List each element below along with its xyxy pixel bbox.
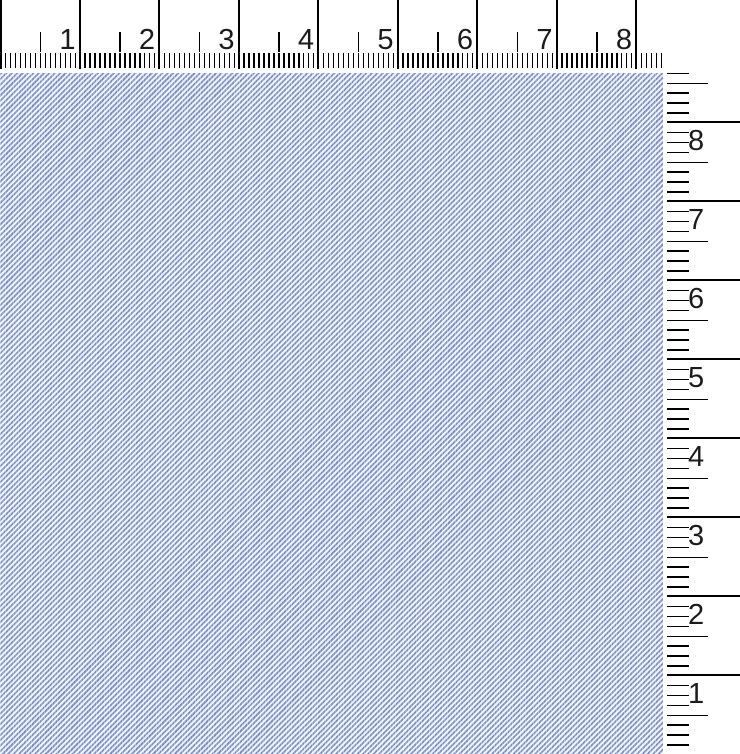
minor-tick bbox=[174, 53, 175, 68]
half-tick bbox=[667, 478, 708, 480]
minor-tick bbox=[283, 53, 284, 68]
h-ruler-number: 1 bbox=[17, 26, 76, 55]
minor-tick bbox=[667, 645, 689, 647]
major-tick bbox=[667, 279, 740, 281]
minor-tick bbox=[119, 53, 120, 68]
minor-tick bbox=[667, 191, 689, 193]
major-tick bbox=[476, 0, 478, 69]
minor-tick bbox=[667, 389, 689, 391]
major-tick bbox=[556, 0, 558, 69]
minor-tick bbox=[169, 53, 170, 68]
minor-tick bbox=[667, 142, 689, 144]
half-tick bbox=[358, 32, 360, 52]
minor-tick bbox=[273, 53, 274, 68]
horizontal-ruler: 12345678 bbox=[0, 0, 663, 72]
v-ruler-number: 4 bbox=[688, 443, 728, 472]
minor-tick bbox=[667, 112, 689, 114]
minor-tick bbox=[667, 418, 689, 420]
minor-tick bbox=[313, 53, 314, 68]
minor-tick bbox=[667, 507, 689, 509]
minor-tick bbox=[667, 576, 689, 578]
v-ruler-number: 8 bbox=[688, 127, 728, 156]
minor-tick bbox=[507, 53, 508, 68]
h-ruler-number: 7 bbox=[494, 26, 553, 55]
minor-tick bbox=[447, 53, 448, 68]
minor-tick bbox=[492, 53, 493, 68]
major-tick bbox=[667, 595, 740, 597]
minor-tick bbox=[667, 132, 689, 134]
major-tick bbox=[79, 0, 81, 69]
minor-tick bbox=[442, 53, 443, 68]
minor-tick bbox=[667, 221, 689, 223]
minor-tick bbox=[502, 53, 503, 68]
minor-tick bbox=[457, 53, 458, 68]
minor-tick bbox=[60, 53, 61, 68]
minor-tick bbox=[154, 53, 155, 68]
minor-tick bbox=[393, 53, 394, 68]
h-ruler-number: 5 bbox=[335, 26, 394, 55]
minor-tick bbox=[667, 231, 689, 233]
minor-tick bbox=[184, 53, 185, 68]
minor-tick bbox=[134, 53, 135, 68]
minor-tick bbox=[144, 53, 145, 68]
minor-tick bbox=[667, 497, 689, 499]
h-ruler-number: 2 bbox=[96, 26, 155, 55]
minor-tick bbox=[114, 53, 115, 68]
minor-tick bbox=[616, 53, 617, 68]
minor-tick bbox=[571, 53, 572, 68]
v-ruler-number: 5 bbox=[688, 364, 728, 393]
minor-tick bbox=[20, 53, 21, 68]
minor-tick bbox=[542, 53, 543, 68]
minor-tick bbox=[581, 53, 582, 68]
major-tick bbox=[158, 0, 160, 69]
minor-tick bbox=[149, 53, 150, 68]
minor-tick bbox=[417, 53, 418, 68]
minor-tick bbox=[55, 53, 56, 68]
major-tick bbox=[635, 0, 637, 69]
minor-tick bbox=[611, 53, 612, 68]
minor-tick bbox=[15, 53, 16, 68]
minor-tick bbox=[667, 73, 689, 75]
minor-tick bbox=[606, 53, 607, 68]
minor-tick bbox=[667, 290, 689, 292]
half-tick bbox=[667, 715, 708, 717]
minor-tick bbox=[333, 53, 334, 68]
minor-tick bbox=[576, 53, 577, 68]
minor-tick bbox=[667, 537, 689, 539]
minor-tick bbox=[667, 665, 689, 667]
minor-tick bbox=[667, 300, 689, 302]
minor-tick bbox=[667, 487, 689, 489]
minor-tick bbox=[596, 53, 597, 68]
minor-tick bbox=[432, 53, 433, 68]
minor-tick bbox=[646, 53, 647, 68]
minor-tick bbox=[293, 53, 294, 68]
half-tick bbox=[119, 32, 121, 52]
minor-tick bbox=[328, 53, 329, 68]
v-ruler-number: 6 bbox=[688, 285, 728, 314]
minor-tick bbox=[164, 53, 165, 68]
minor-tick bbox=[667, 685, 689, 687]
minor-tick bbox=[388, 53, 389, 68]
minor-tick bbox=[214, 53, 215, 68]
minor-tick bbox=[437, 53, 438, 68]
minor-tick bbox=[373, 53, 374, 68]
minor-tick bbox=[667, 102, 689, 104]
minor-tick bbox=[104, 53, 105, 68]
major-tick bbox=[397, 0, 399, 69]
minor-tick bbox=[358, 53, 359, 68]
minor-tick bbox=[348, 53, 349, 68]
half-tick bbox=[667, 636, 708, 638]
minor-tick bbox=[631, 53, 632, 68]
minor-tick bbox=[467, 53, 468, 68]
minor-tick bbox=[552, 53, 553, 68]
minor-tick bbox=[452, 53, 453, 68]
minor-tick bbox=[667, 250, 689, 252]
minor-tick bbox=[667, 171, 689, 173]
minor-tick bbox=[667, 260, 689, 262]
minor-tick bbox=[667, 705, 689, 707]
minor-tick bbox=[199, 53, 200, 68]
minor-tick bbox=[179, 53, 180, 68]
minor-tick bbox=[109, 53, 110, 68]
half-tick bbox=[667, 162, 708, 164]
minor-tick bbox=[45, 53, 46, 68]
minor-tick bbox=[35, 53, 36, 68]
minor-tick bbox=[561, 53, 562, 68]
half-tick bbox=[667, 557, 708, 559]
minor-tick bbox=[323, 53, 324, 68]
minor-tick bbox=[253, 53, 254, 68]
minor-tick bbox=[422, 53, 423, 68]
minor-tick bbox=[651, 53, 652, 68]
h-ruler-number: 4 bbox=[255, 26, 314, 55]
minor-tick bbox=[30, 53, 31, 68]
minor-tick bbox=[667, 211, 689, 213]
major-tick bbox=[667, 437, 740, 439]
minor-tick bbox=[547, 53, 548, 68]
fabric-swatch bbox=[0, 73, 663, 754]
major-tick bbox=[667, 121, 740, 123]
minor-tick bbox=[667, 547, 689, 549]
minor-tick bbox=[194, 53, 195, 68]
minor-tick bbox=[661, 53, 662, 68]
fabric-swatch-page: 12345678 87654321 bbox=[0, 0, 740, 754]
minor-tick bbox=[667, 695, 689, 697]
minor-tick bbox=[94, 53, 95, 68]
minor-tick bbox=[532, 53, 533, 68]
minor-tick bbox=[497, 53, 498, 68]
minor-tick bbox=[667, 616, 689, 618]
minor-tick bbox=[268, 53, 269, 68]
minor-tick bbox=[303, 53, 304, 68]
minor-tick bbox=[278, 53, 279, 68]
minor-tick bbox=[258, 53, 259, 68]
major-tick bbox=[667, 516, 740, 518]
vertical-ruler: 87654321 bbox=[663, 70, 740, 754]
half-tick bbox=[667, 83, 708, 85]
half-tick bbox=[667, 399, 708, 401]
minor-tick bbox=[25, 53, 26, 68]
minor-tick bbox=[248, 53, 249, 68]
minor-tick bbox=[667, 734, 689, 736]
minor-tick bbox=[667, 527, 689, 529]
minor-tick bbox=[288, 53, 289, 68]
minor-tick bbox=[667, 448, 689, 450]
minor-tick bbox=[667, 152, 689, 154]
h-ruler-number: 6 bbox=[414, 26, 473, 55]
minor-tick bbox=[139, 53, 140, 68]
half-tick bbox=[667, 241, 708, 243]
minor-tick bbox=[298, 53, 299, 68]
minor-tick bbox=[84, 53, 85, 68]
minor-tick bbox=[263, 53, 264, 68]
minor-tick bbox=[667, 468, 689, 470]
minor-tick bbox=[667, 310, 689, 312]
minor-tick bbox=[224, 53, 225, 68]
minor-tick bbox=[667, 428, 689, 430]
minor-tick bbox=[368, 53, 369, 68]
minor-tick bbox=[407, 53, 408, 68]
v-ruler-number: 2 bbox=[688, 601, 728, 630]
minor-tick bbox=[343, 53, 344, 68]
major-tick bbox=[317, 0, 319, 69]
minor-tick bbox=[667, 379, 689, 381]
minor-tick bbox=[667, 270, 689, 272]
minor-tick bbox=[75, 53, 76, 68]
half-tick bbox=[437, 32, 439, 52]
minor-tick bbox=[338, 53, 339, 68]
minor-tick bbox=[50, 53, 51, 68]
v-ruler-number: 1 bbox=[688, 680, 728, 709]
minor-tick bbox=[482, 53, 483, 68]
minor-tick bbox=[621, 53, 622, 68]
minor-tick bbox=[667, 626, 689, 628]
minor-tick bbox=[667, 181, 689, 183]
minor-tick bbox=[204, 53, 205, 68]
minor-tick bbox=[566, 53, 567, 68]
minor-tick bbox=[626, 53, 627, 68]
minor-tick bbox=[412, 53, 413, 68]
minor-tick bbox=[99, 53, 100, 68]
minor-tick bbox=[40, 53, 41, 68]
minor-tick bbox=[472, 53, 473, 68]
minor-tick bbox=[667, 92, 689, 94]
minor-tick bbox=[234, 53, 235, 68]
minor-tick bbox=[124, 53, 125, 68]
minor-tick bbox=[667, 744, 689, 746]
half-tick bbox=[199, 32, 201, 52]
minor-tick bbox=[512, 53, 513, 68]
minor-tick bbox=[487, 53, 488, 68]
minor-tick bbox=[427, 53, 428, 68]
minor-tick bbox=[129, 53, 130, 68]
minor-tick bbox=[667, 655, 689, 657]
minor-tick bbox=[522, 53, 523, 68]
minor-tick bbox=[667, 349, 689, 351]
minor-tick bbox=[667, 724, 689, 726]
minor-tick bbox=[667, 369, 689, 371]
minor-tick bbox=[667, 606, 689, 608]
minor-tick bbox=[402, 53, 403, 68]
major-tick bbox=[667, 358, 740, 360]
major-tick bbox=[0, 0, 2, 69]
minor-tick bbox=[586, 53, 587, 68]
minor-tick bbox=[537, 53, 538, 68]
minor-tick bbox=[243, 53, 244, 68]
half-tick bbox=[517, 32, 519, 52]
minor-tick bbox=[378, 53, 379, 68]
major-tick bbox=[238, 0, 240, 69]
half-tick bbox=[667, 320, 708, 322]
minor-tick bbox=[219, 53, 220, 68]
v-ruler-number: 3 bbox=[688, 522, 728, 551]
minor-tick bbox=[10, 53, 11, 68]
minor-tick bbox=[462, 53, 463, 68]
minor-tick bbox=[667, 586, 689, 588]
half-tick bbox=[40, 32, 42, 52]
minor-tick bbox=[89, 53, 90, 68]
minor-tick bbox=[517, 53, 518, 68]
minor-tick bbox=[667, 339, 689, 341]
minor-tick bbox=[667, 329, 689, 331]
minor-tick bbox=[383, 53, 384, 68]
minor-tick bbox=[229, 53, 230, 68]
half-tick bbox=[278, 32, 280, 52]
half-tick bbox=[596, 32, 598, 52]
minor-tick bbox=[667, 566, 689, 568]
minor-tick bbox=[70, 53, 71, 68]
minor-tick bbox=[641, 53, 642, 68]
major-tick bbox=[667, 200, 740, 202]
minor-tick bbox=[667, 408, 689, 410]
major-tick bbox=[667, 674, 740, 676]
minor-tick bbox=[5, 53, 6, 68]
v-ruler-number: 7 bbox=[688, 206, 728, 235]
h-ruler-number: 8 bbox=[573, 26, 632, 55]
minor-tick bbox=[209, 53, 210, 68]
minor-tick bbox=[527, 53, 528, 68]
minor-tick bbox=[189, 53, 190, 68]
minor-tick bbox=[308, 53, 309, 68]
minor-tick bbox=[363, 53, 364, 68]
minor-tick bbox=[65, 53, 66, 68]
minor-tick bbox=[591, 53, 592, 68]
minor-tick bbox=[353, 53, 354, 68]
minor-tick bbox=[601, 53, 602, 68]
minor-tick bbox=[656, 53, 657, 68]
h-ruler-number: 3 bbox=[176, 26, 235, 55]
minor-tick bbox=[667, 458, 689, 460]
